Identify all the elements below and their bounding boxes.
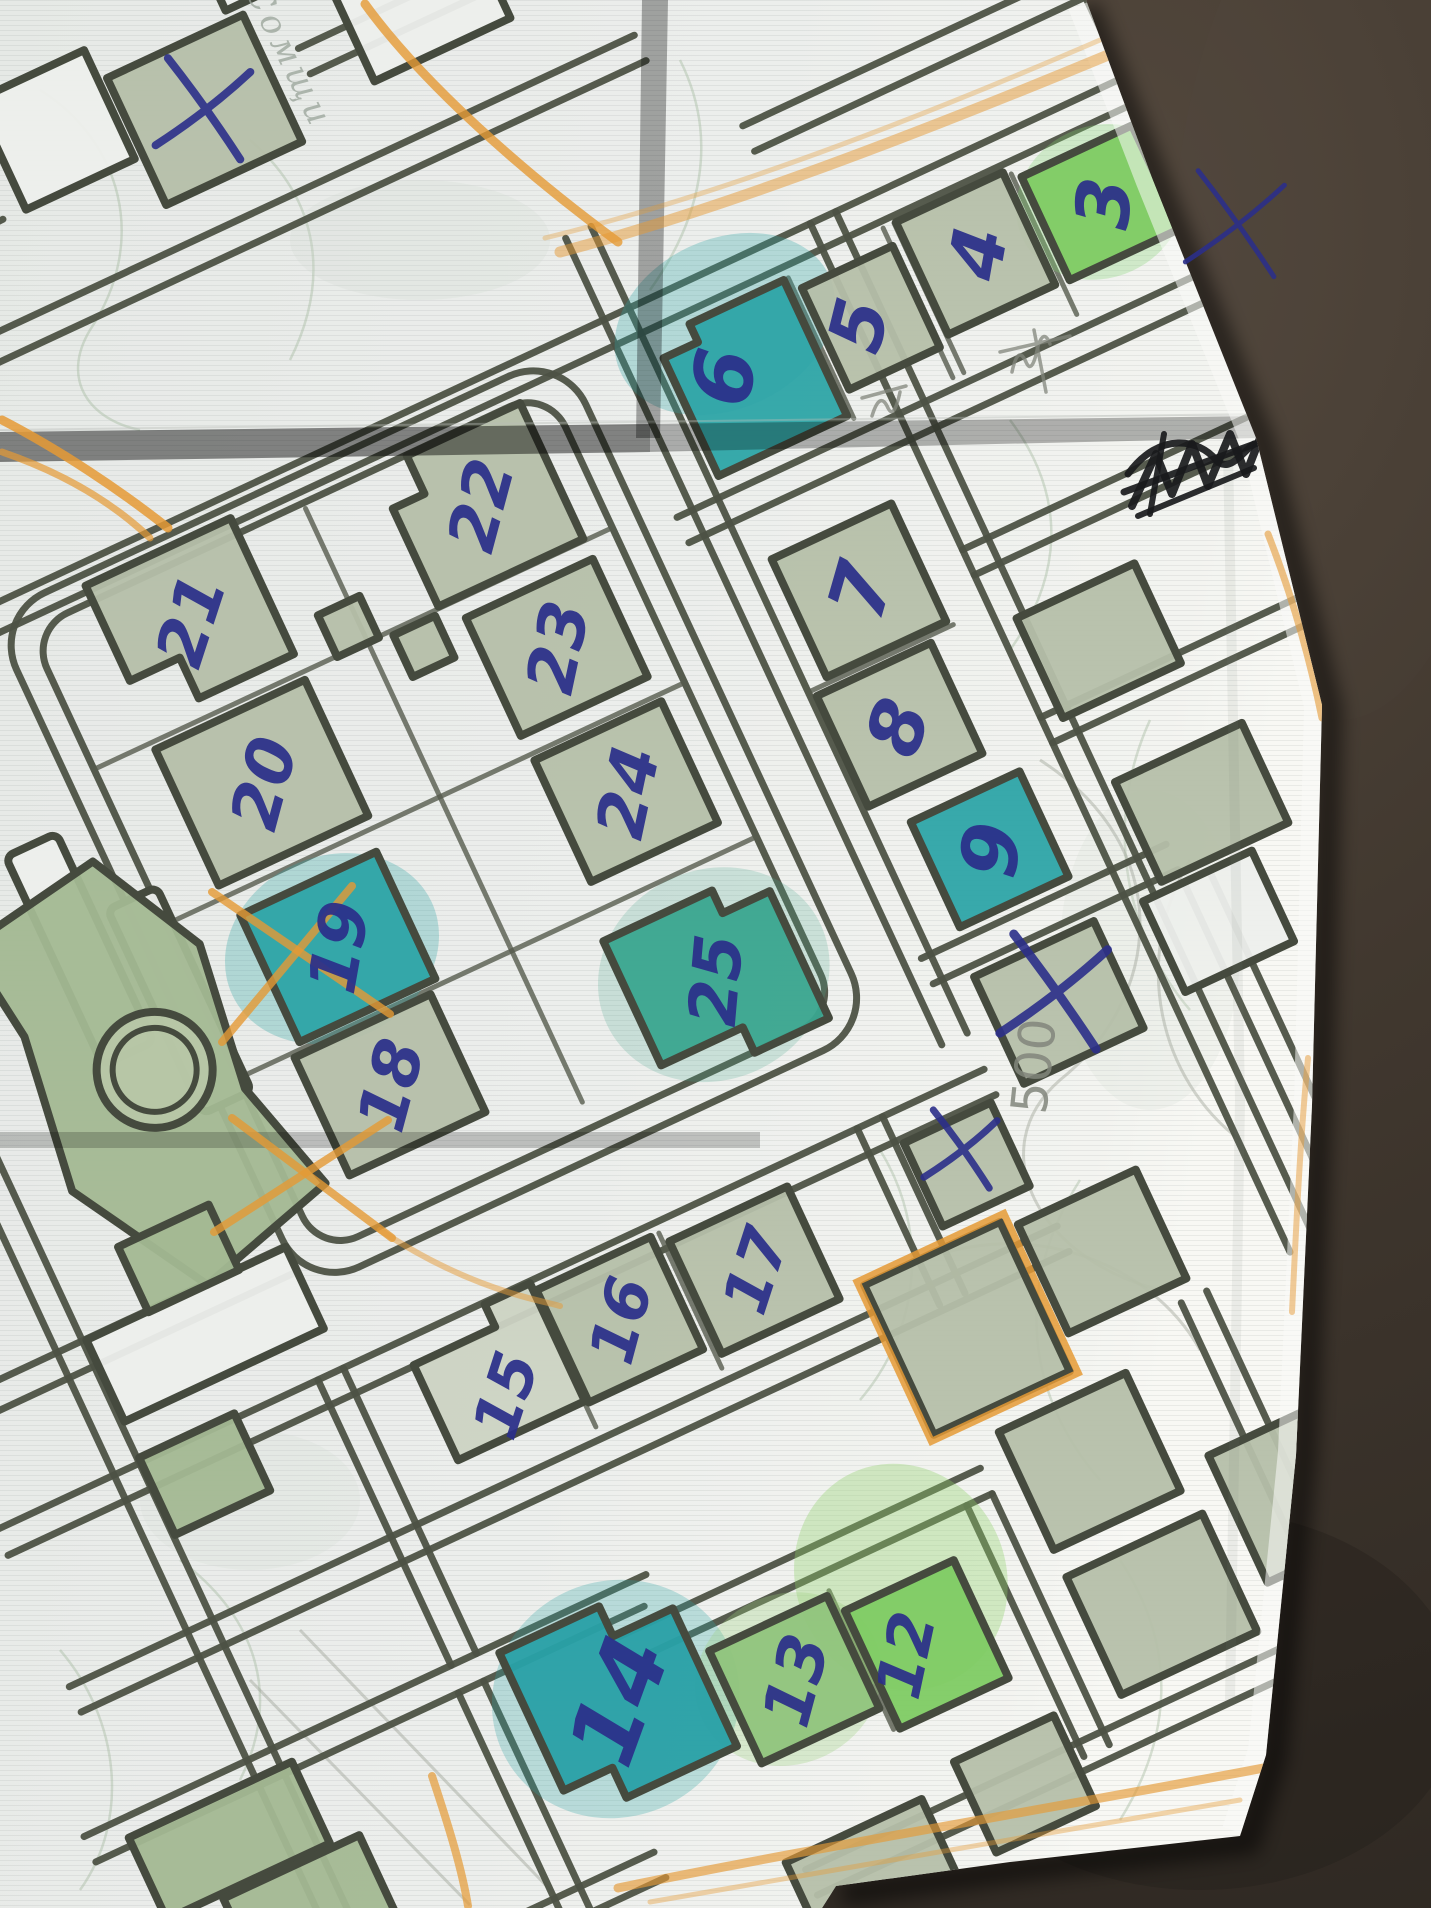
distance-note-500: 500 [1000, 1016, 1068, 1117]
map-photo: 34567891213141516171819202122232425500Со… [0, 0, 1431, 1908]
control-number-25: 25 [674, 931, 759, 1029]
control-number-19: 19 [293, 895, 385, 999]
control-number-3: 3 [1060, 174, 1150, 233]
